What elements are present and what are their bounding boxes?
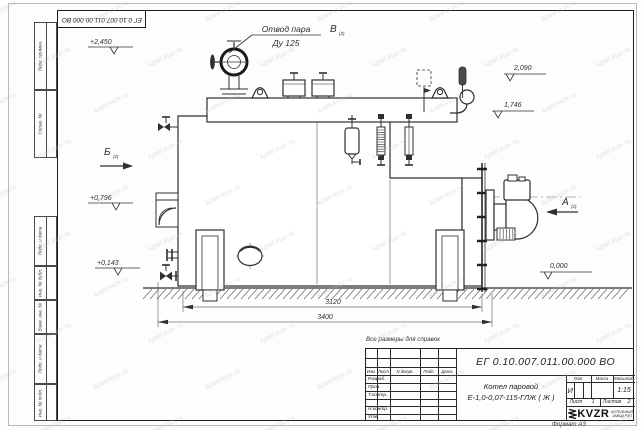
svg-text:(2): (2) <box>339 31 345 36</box>
svg-text:3120: 3120 <box>325 299 341 306</box>
col-ndoc: N докум. <box>390 369 420 374</box>
row-razrab: Разраб. <box>368 377 385 382</box>
view-arrow-b: Б (2) <box>100 147 133 170</box>
view-arrow-a: А (2) <box>546 197 578 216</box>
kvzr-spring-icon <box>568 408 577 421</box>
svg-text:+2,450: +2,450 <box>90 39 112 46</box>
elevation-2450: +2,450 <box>88 39 133 54</box>
row-utv: Утв. <box>368 415 379 420</box>
sheets-label: Листов <box>600 398 624 406</box>
logo-subtext: КОТЕЛЬНЫЙ ЗАВОД РЭП <box>611 410 632 419</box>
burner <box>486 175 538 240</box>
reference-dimensions-note: Все размеры для справок <box>366 336 440 343</box>
svg-text:Отвод пара: Отвод пара <box>262 24 311 34</box>
view-label-v: В (2) <box>330 24 345 36</box>
blowdown-valve <box>160 265 178 281</box>
logo-text: KVZR <box>577 408 609 420</box>
masshtab-label: Масштаб <box>613 376 635 381</box>
sheet-label: Лист <box>566 398 586 406</box>
svg-text:0,000: 0,000 <box>550 263 568 270</box>
steam-outlet-callout: Отвод пара Ду 125 <box>229 24 321 53</box>
support-leg-right <box>436 230 464 301</box>
sheet-value: 1 <box>588 398 598 406</box>
svg-text:(2): (2) <box>113 154 119 159</box>
col-izm: Изм. <box>366 369 377 374</box>
svg-text:(2): (2) <box>571 204 577 209</box>
scale-value: 1:15 <box>613 382 635 398</box>
svg-text:+0,143: +0,143 <box>97 260 119 267</box>
support-leg-left <box>196 230 224 301</box>
svg-text:2,090: 2,090 <box>513 65 532 72</box>
elevation-1746: 1,746 <box>492 102 534 118</box>
svg-text:В: В <box>330 24 337 35</box>
title-block: Изм. Лист N докум. Подп. Дата Разраб. Пр… <box>365 348 634 421</box>
lifting-lug-rear <box>432 88 448 98</box>
svg-text:3400: 3400 <box>317 314 333 321</box>
safety-valve-1 <box>283 73 305 98</box>
elevation-0143: +0,143 <box>95 260 140 275</box>
burner-motor <box>504 180 530 200</box>
elevation-0000: 0,000 <box>540 263 592 279</box>
svg-text:А: А <box>561 197 569 208</box>
svg-text:Б: Б <box>104 147 111 158</box>
row-tkontr: Т.контр. <box>368 393 387 398</box>
dimension-3120: 3120 <box>183 291 482 312</box>
format-label: Формат А3 <box>552 421 586 428</box>
document-number: ЕГ 0.10.007.011.00.000 ВО <box>456 349 635 375</box>
svg-text:1,746: 1,746 <box>504 102 522 109</box>
massa-label: Масса <box>591 376 613 381</box>
drum-opening-dashed <box>417 70 431 86</box>
row-prov: Пров. <box>368 385 381 390</box>
thermo-pocket <box>459 67 466 98</box>
product-name: Котел паровой Е-1,0-0,07-115-ГЛЖ ( Ж ) <box>456 375 566 409</box>
elevation-2090: 2,090 <box>504 65 546 81</box>
steam-drum <box>207 98 457 122</box>
lit-label: Лит. <box>566 376 591 381</box>
col-list: Лист <box>377 369 390 374</box>
row-nkontr: Н.контр. <box>368 407 388 412</box>
svg-text:Ду 125: Ду 125 <box>272 38 300 48</box>
steam-outlet-valve <box>210 41 248 94</box>
feed-elbow <box>156 193 178 227</box>
drawing-sheet: ЕГ 0.10.007.011.00.000 ВО Перв. примен. … <box>0 0 644 430</box>
col-data: Дата <box>438 369 456 374</box>
upper-left-tap <box>158 117 178 131</box>
manufacturer-logo: KVZR КОТЕЛЬНЫЙ ЗАВОД РЭП <box>566 406 635 422</box>
svg-text:+0,796: +0,796 <box>90 195 112 202</box>
elevation-0796: +0,796 <box>88 195 133 210</box>
lower-left-flange <box>167 249 178 261</box>
safety-valve-2 <box>312 73 334 98</box>
lit-value: И <box>566 382 574 398</box>
lifting-lug-front <box>252 88 268 98</box>
sheets-value: 2 <box>624 398 634 406</box>
col-podp: Подп. <box>420 369 438 374</box>
